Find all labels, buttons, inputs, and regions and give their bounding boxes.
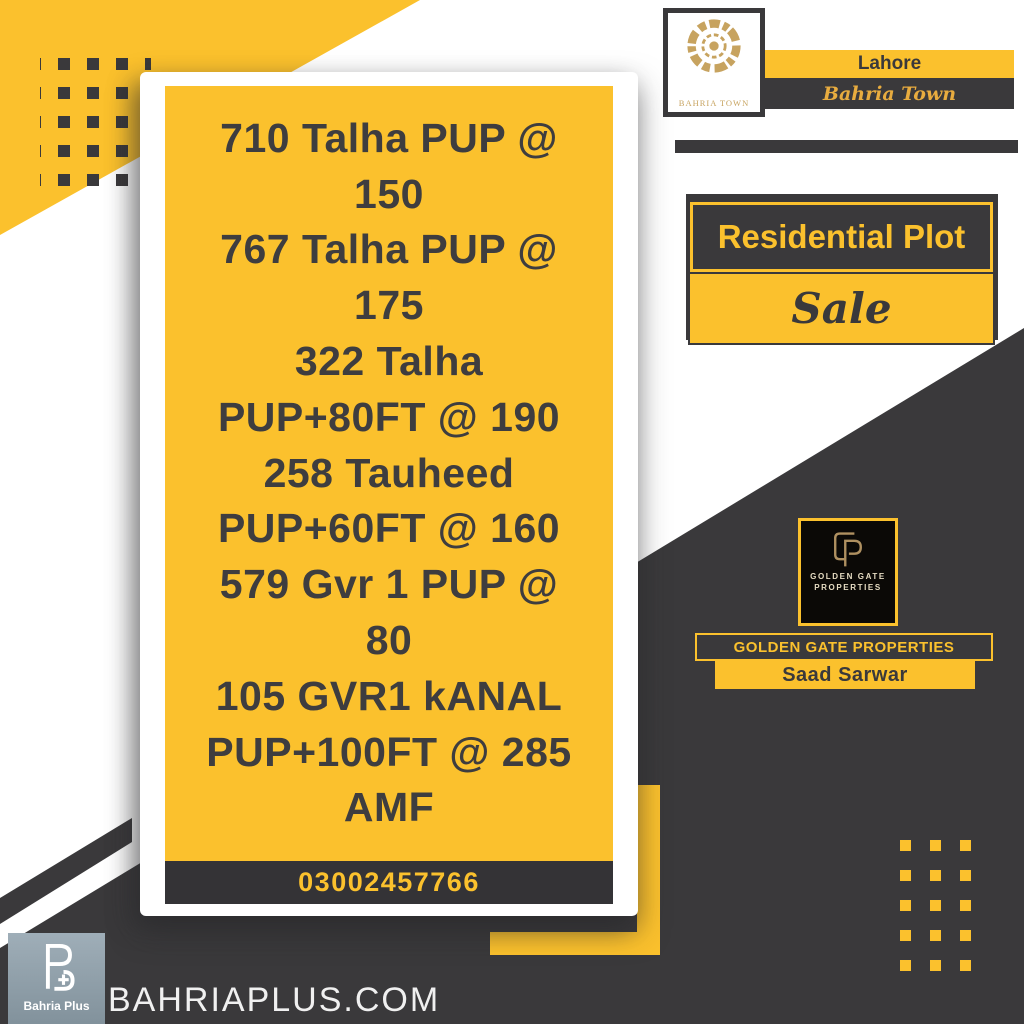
city-bar: Lahore — [765, 50, 1014, 78]
golden-gate-logo-line1: GOLDEN GATE — [810, 571, 886, 582]
deal-type-label: Sale — [791, 284, 891, 333]
bahria-town-logo-caption: BAHRIA TOWN — [679, 98, 749, 108]
listing-line: 322 Talha — [295, 334, 483, 390]
listing-line: AMF — [344, 780, 434, 836]
agent-name-label: Saad Sarwar — [782, 664, 908, 687]
listing-line: 80 — [366, 613, 413, 669]
listing-line: 175 — [354, 278, 424, 334]
website-text: BAHRIAPLUS.COM — [108, 981, 440, 1020]
category-box: Residential Plot — [690, 202, 993, 272]
listing-line: 150 — [354, 167, 424, 223]
listing-line: 767 Talha PUP @ — [220, 222, 558, 278]
listing-line: PUP+100FT @ 285 — [206, 725, 571, 781]
dots-pattern-bottom-right — [887, 823, 988, 984]
bahria-plus-logo-box: Bahria Plus — [8, 933, 105, 1024]
agent-name-bar: Saad Sarwar — [715, 661, 975, 689]
bahria-plus-label: Bahria Plus — [23, 999, 89, 1013]
deal-type-box: Sale — [688, 272, 995, 345]
city-label: Lahore — [858, 53, 921, 75]
brand-script-label: Bahria Town — [823, 83, 956, 105]
listing-card: 710 Talha PUP @ 150 767 Talha PUP @ 175 … — [140, 72, 638, 916]
listing-line: PUP+60FT @ 160 — [218, 501, 560, 557]
golden-gate-logo-line2: PROPERTIES — [814, 582, 882, 593]
listing-line: 579 Gvr 1 PUP @ — [220, 557, 558, 613]
category-label: Residential Plot — [718, 218, 966, 256]
listing-line: PUP+80FT @ 190 — [218, 390, 560, 446]
listing-line: 105 GVR1 kANAL — [216, 669, 563, 725]
listing-line: 710 Talha PUP @ — [220, 111, 558, 167]
bahria-town-emblem-icon — [686, 18, 742, 74]
phone-number: 03002457766 — [298, 867, 480, 898]
agency-name-label: GOLDEN GATE PROPERTIES — [734, 639, 955, 656]
golden-gate-monogram-icon — [826, 529, 870, 571]
brand-bar: Bahria Town — [765, 78, 1014, 109]
header-accent-strip — [675, 140, 1018, 153]
listing-panel: 710 Talha PUP @ 150 767 Talha PUP @ 175 … — [165, 86, 613, 861]
agency-name-bar: GOLDEN GATE PROPERTIES — [695, 633, 993, 661]
dots-pattern-top-left — [40, 43, 151, 200]
listing-line: 258 Tauheed — [264, 446, 515, 502]
bahria-town-logo-box: BAHRIA TOWN — [663, 8, 765, 117]
poster: 710 Talha PUP @ 150 767 Talha PUP @ 175 … — [0, 0, 1024, 1024]
phone-bar: 03002457766 — [165, 861, 613, 904]
bahria-plus-monogram-icon — [31, 939, 83, 997]
golden-gate-logo-box: GOLDEN GATE PROPERTIES — [798, 518, 898, 626]
